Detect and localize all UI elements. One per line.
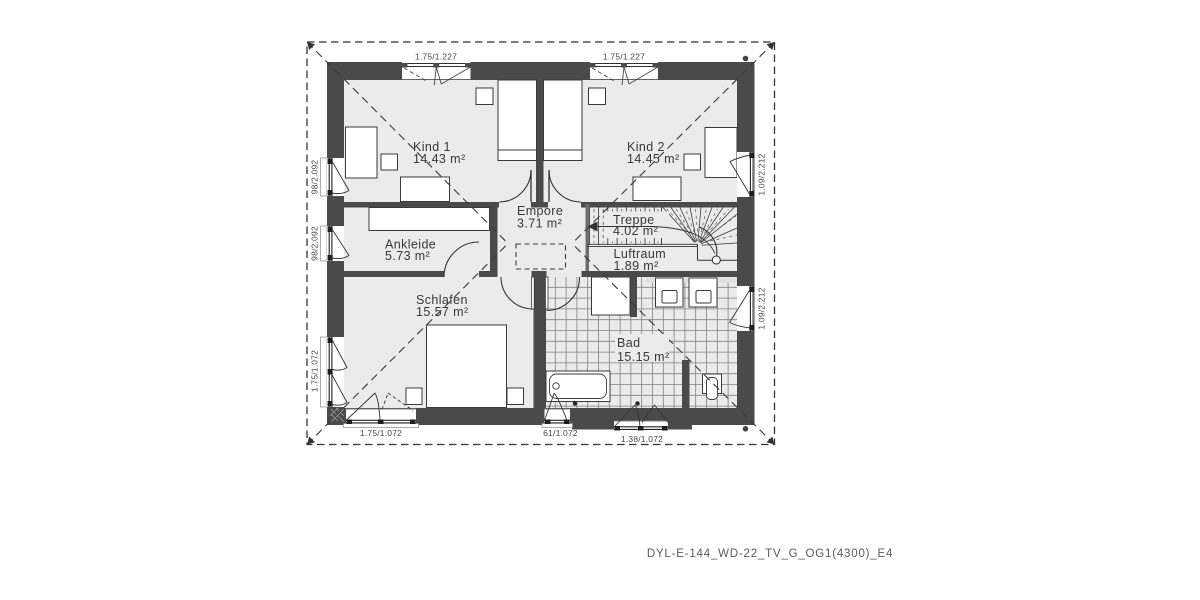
svg-text:14.45 m²: 14.45 m²: [627, 152, 680, 166]
svg-text:15.15 m²: 15.15 m²: [617, 350, 670, 364]
svg-text:Bad: Bad: [617, 336, 640, 350]
svg-text:1.75/1.072: 1.75/1.072: [360, 428, 402, 438]
svg-text:1.09/2.212: 1.09/2.212: [757, 287, 767, 329]
svg-text:1.75/1.227: 1.75/1.227: [415, 52, 457, 62]
svg-text:98/2.092: 98/2.092: [310, 226, 320, 261]
svg-text:1.75/1.227: 1.75/1.227: [603, 52, 645, 62]
svg-text:5.73 m²: 5.73 m²: [385, 249, 430, 263]
svg-text:1.75/1.072: 1.75/1.072: [310, 350, 320, 392]
svg-text:98/2.092: 98/2.092: [310, 160, 320, 195]
svg-text:3.71 m²: 3.71 m²: [517, 217, 562, 231]
svg-text:1.89 m²: 1.89 m²: [614, 259, 659, 273]
svg-text:14.43 m²: 14.43 m²: [413, 152, 466, 166]
svg-text:61/1.072: 61/1.072: [543, 428, 578, 438]
svg-text:DYL-E-144_WD-22_TV_G_OG1(4300): DYL-E-144_WD-22_TV_G_OG1(4300)_E4: [647, 548, 893, 560]
svg-text:4.02 m²: 4.02 m²: [613, 224, 658, 238]
svg-text:1.09/2.212: 1.09/2.212: [757, 153, 767, 195]
svg-text:1.38/1.072: 1.38/1.072: [621, 434, 663, 444]
svg-text:15.57 m²: 15.57 m²: [416, 305, 469, 319]
